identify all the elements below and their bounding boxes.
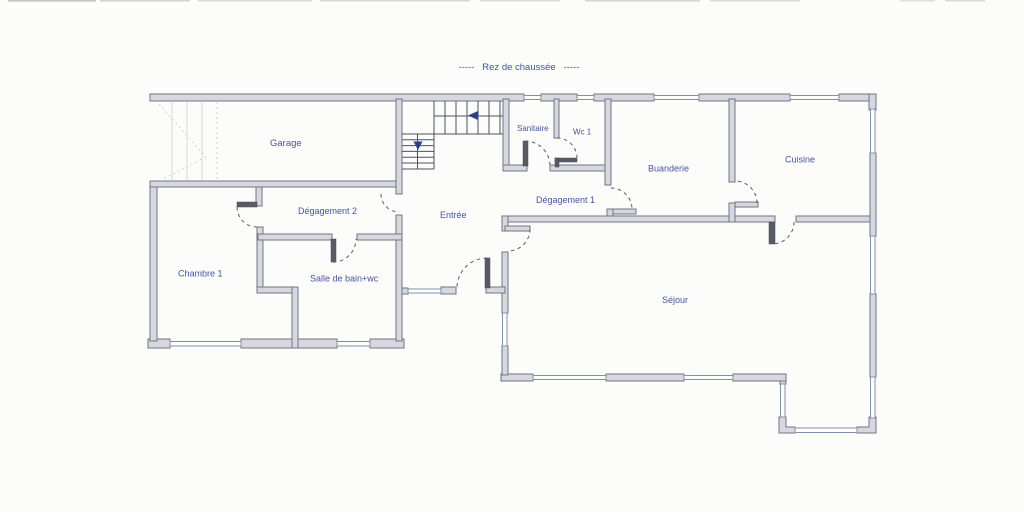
svg-text:----- Rez de chaussée ----: ----- Rez de chaussée ----- xyxy=(459,62,580,73)
svg-text:Cuisine: Cuisine xyxy=(785,155,815,165)
svg-text:Entrée: Entrée xyxy=(440,210,467,220)
svg-text:Sanitaire: Sanitaire xyxy=(517,124,549,133)
svg-text:Dégagement 1: Dégagement 1 xyxy=(536,195,595,205)
svg-text:Chambre 1: Chambre 1 xyxy=(178,269,223,279)
svg-text:Wc 1: Wc 1 xyxy=(573,128,592,137)
svg-text:Dégagement 2: Dégagement 2 xyxy=(298,206,357,216)
svg-text:Buanderie: Buanderie xyxy=(648,164,689,174)
svg-text:Séjour: Séjour xyxy=(662,295,688,305)
svg-text:Garage: Garage xyxy=(270,138,302,149)
svg-text:Salle de bain+wc: Salle de bain+wc xyxy=(310,274,379,284)
